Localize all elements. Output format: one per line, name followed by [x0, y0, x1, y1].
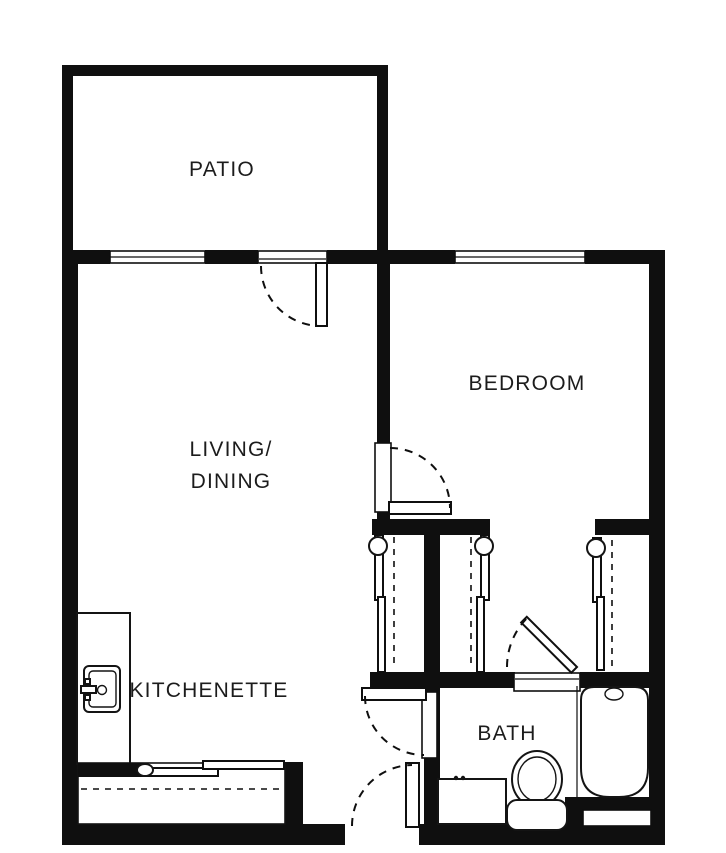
- toilet: [507, 751, 567, 830]
- bathroom-vanity: [438, 776, 506, 824]
- tub-outline: [581, 687, 648, 797]
- living-window: [110, 251, 205, 263]
- wall-segment: [62, 250, 78, 845]
- door-swing-arc: [390, 448, 450, 508]
- door-leaf: [406, 763, 419, 827]
- door-threshold: [514, 673, 580, 691]
- wall-segment: [595, 519, 651, 535]
- closet-middle: [471, 535, 493, 672]
- door-leaf: [521, 617, 577, 673]
- wall-segment: [377, 250, 390, 443]
- vanity-outline: [438, 779, 506, 824]
- faucet-handle: [85, 679, 90, 684]
- kitchenette-label: KITCHENETTE: [129, 679, 288, 702]
- door-knob-icon: [369, 537, 387, 555]
- faucet-icon: [81, 686, 96, 693]
- door-knob-icon: [587, 539, 605, 557]
- closet-left: [369, 535, 394, 672]
- bathtub: [577, 686, 648, 797]
- floor-plan-canvas: PATIO LIVING/ DINING BEDROOM KITCHENETTE…: [0, 0, 726, 853]
- door-leaf: [362, 688, 426, 700]
- bath-window: [583, 810, 651, 826]
- door-swing-arc: [365, 696, 424, 755]
- patio-door: [258, 251, 327, 326]
- bath-hall-door: [507, 617, 580, 691]
- bedroom-label: BEDROOM: [469, 372, 586, 395]
- door-knob-icon: [137, 764, 153, 776]
- faucet-dot: [454, 776, 458, 780]
- toilet-bowl: [512, 751, 562, 807]
- wall-segment: [580, 672, 651, 688]
- sliding-panel: [203, 761, 284, 769]
- living-label-line2: DINING: [191, 470, 272, 493]
- wall-segment: [327, 250, 455, 264]
- toilet-tank: [507, 800, 567, 830]
- wall-segment: [205, 250, 258, 264]
- bedroom-door: [375, 443, 451, 514]
- door-knob-icon: [475, 537, 493, 555]
- wall-segment: [62, 824, 345, 845]
- wall-segment: [62, 65, 73, 255]
- wall-segment: [370, 672, 515, 688]
- wall-segment: [285, 762, 303, 824]
- door-leaf: [389, 502, 451, 514]
- closet-door-panel: [378, 597, 385, 672]
- door-leaf: [316, 263, 327, 326]
- bedroom-window: [455, 251, 585, 263]
- bath-label: BATH: [477, 722, 536, 745]
- closet-door-panel: [477, 597, 484, 672]
- door-opening: [258, 251, 327, 263]
- door-swing-arc: [261, 266, 321, 326]
- faucet-dot: [461, 776, 465, 780]
- wall-segment: [377, 65, 388, 255]
- living-label-line1: LIVING/: [189, 438, 272, 461]
- closet-right: [587, 538, 612, 670]
- floor-plan: PATIO LIVING/ DINING BEDROOM KITCHENETTE…: [0, 0, 726, 853]
- faucet-handle: [85, 695, 90, 700]
- wall-segment: [62, 65, 388, 76]
- kitchen-sink: [81, 666, 120, 712]
- south-wardrobe: [78, 761, 285, 824]
- closet-door-panel: [597, 597, 604, 670]
- exterior-walls: [62, 250, 665, 845]
- door-swing-arc: [352, 765, 412, 826]
- patio-label: PATIO: [189, 158, 255, 181]
- wall-segment: [649, 250, 665, 845]
- entry-door: [345, 763, 419, 845]
- bath-side-door: [362, 688, 437, 758]
- door-opening: [422, 692, 437, 758]
